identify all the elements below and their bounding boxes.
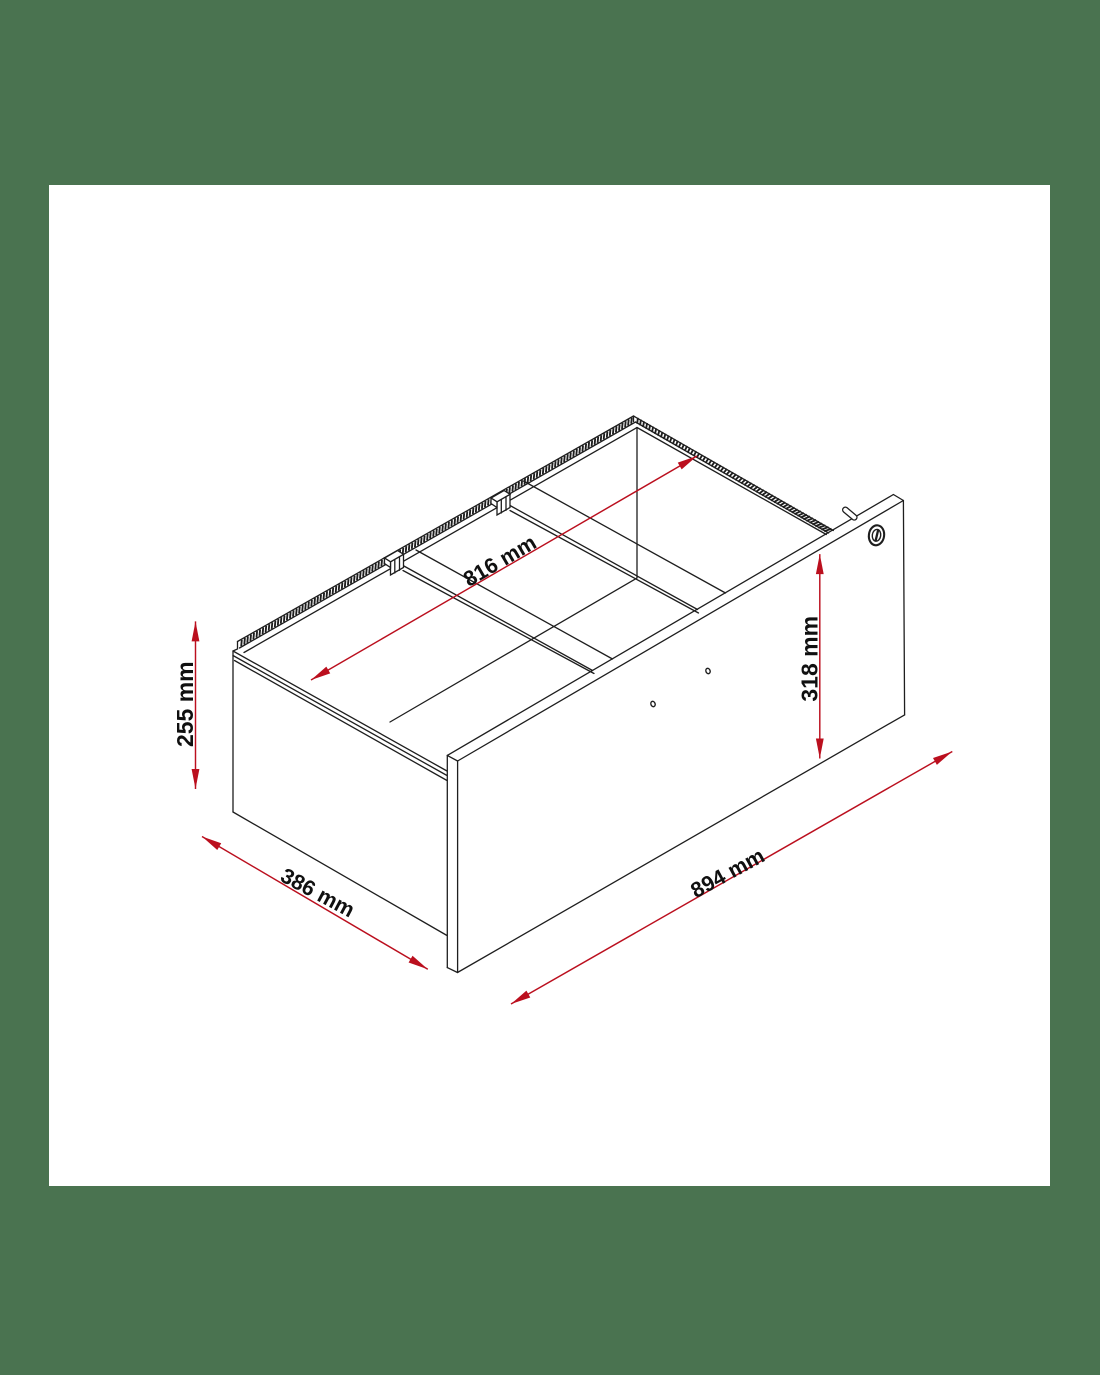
svg-text:318 mm: 318 mm [797, 616, 823, 702]
svg-text:255 mm: 255 mm [172, 661, 198, 747]
